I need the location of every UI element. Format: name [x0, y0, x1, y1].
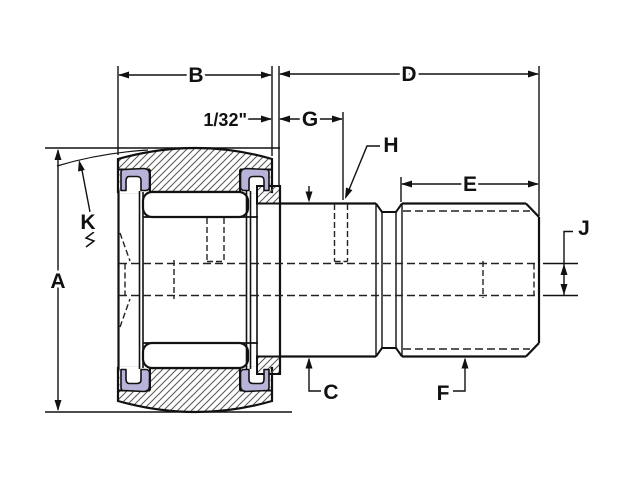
dim-label-c: C: [323, 381, 338, 404]
dim-label-b: B: [188, 64, 203, 87]
cam-follower-drawing-page: A B C D E F G H J K 1/32": [0, 0, 640, 480]
dim-label-k: K: [80, 211, 95, 234]
dim-label-a: A: [50, 270, 65, 293]
dim-label-offset: 1/32": [203, 110, 247, 130]
dim-label-j: J: [578, 217, 590, 240]
drawing-background: [0, 0, 640, 480]
dim-label-d: D: [401, 63, 416, 86]
dim-label-g: G: [302, 108, 318, 131]
cam-follower-diagram: A B C D E F G H J K 1/32": [0, 0, 640, 480]
dim-label-h: H: [383, 134, 398, 157]
dim-label-f: F: [437, 382, 450, 405]
dim-label-e: E: [463, 173, 477, 196]
